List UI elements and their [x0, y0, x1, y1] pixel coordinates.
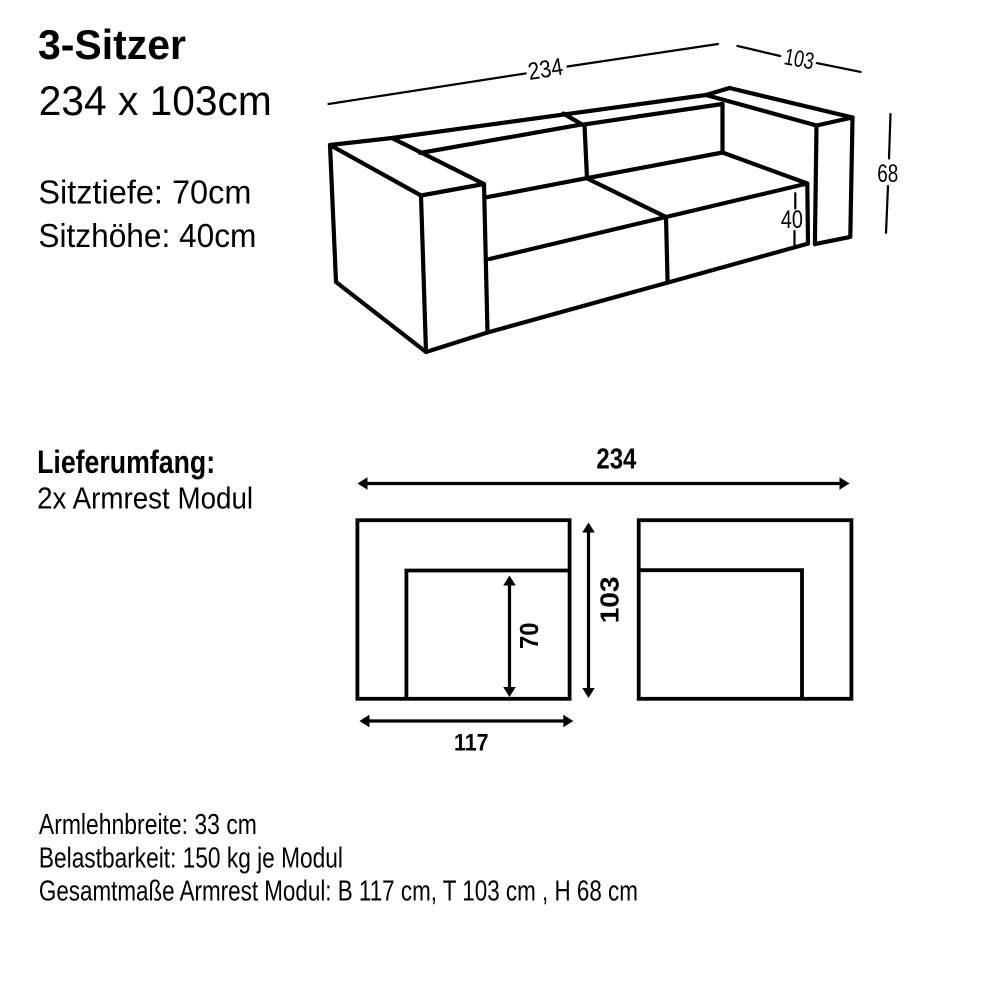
svg-text:Sitzhöhe: 40cm: Sitzhöhe: 40cm: [38, 217, 256, 254]
svg-text:40: 40: [781, 207, 803, 234]
svg-text:234: 234: [596, 443, 636, 475]
svg-text:Belastbarkeit: 150 kg je Modul: Belastbarkeit: 150 kg je Modul: [39, 843, 343, 875]
svg-text:3-Sitzer: 3-Sitzer: [38, 21, 186, 68]
svg-text:Sitztiefe: 70cm: Sitztiefe: 70cm: [38, 174, 251, 211]
svg-text:Lieferumfang:: Lieferumfang:: [37, 443, 215, 480]
svg-text:Armlehnbreite: 33 cm: Armlehnbreite: 33 cm: [39, 809, 257, 841]
svg-text:2x Armrest Modul: 2x Armrest Modul: [37, 480, 253, 515]
svg-text:70: 70: [514, 623, 544, 650]
svg-text:234 x 103cm: 234 x 103cm: [39, 77, 272, 124]
svg-text:234: 234: [526, 54, 565, 86]
svg-text:103: 103: [596, 577, 624, 624]
svg-text:Gesamtmaße Armrest Modul: B 11: Gesamtmaße Armrest Modul: B 117 cm, T 10…: [39, 876, 638, 908]
svg-text:117: 117: [454, 730, 489, 757]
svg-text:103: 103: [782, 43, 816, 74]
svg-text:68: 68: [877, 161, 898, 188]
